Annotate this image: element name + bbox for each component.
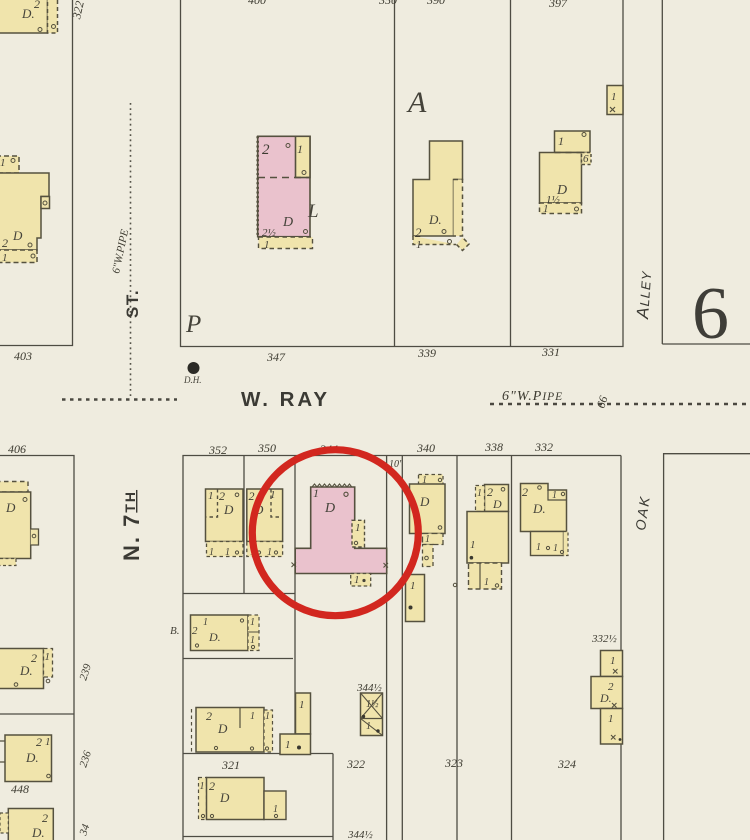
svg-text:D.: D. [21, 6, 35, 21]
svg-text:1: 1 [366, 721, 371, 732]
svg-text:1: 1 [610, 655, 616, 667]
svg-text:340: 340 [416, 441, 435, 455]
svg-text:1: 1 [313, 486, 319, 500]
svg-text:1: 1 [270, 489, 276, 501]
svg-text:406: 406 [8, 442, 26, 456]
svg-text:347: 347 [266, 350, 286, 364]
svg-text:2: 2 [522, 485, 528, 499]
svg-text:D: D [217, 721, 228, 736]
svg-text:1: 1 [425, 534, 430, 545]
svg-text:1: 1 [410, 580, 416, 592]
svg-text:448: 448 [11, 782, 29, 796]
svg-text:2: 2 [34, 0, 40, 11]
svg-text:P: P [185, 311, 201, 338]
svg-text:6"W.PIPE: 6"W.PIPE [502, 389, 563, 404]
svg-text:1: 1 [299, 699, 305, 711]
svg-text:D: D [492, 497, 502, 511]
svg-text:350: 350 [257, 441, 276, 455]
svg-text:397: 397 [548, 0, 568, 10]
svg-text:1: 1 [536, 542, 541, 553]
svg-text:D: D [5, 500, 16, 515]
svg-text:1: 1 [267, 547, 272, 558]
svg-text:D.: D. [599, 691, 612, 705]
svg-text:1: 1 [203, 617, 208, 628]
svg-text:1: 1 [2, 252, 8, 264]
svg-text:D.: D. [25, 750, 39, 765]
svg-text:350: 350 [378, 0, 397, 7]
svg-text:324: 324 [557, 757, 576, 771]
svg-text:2: 2 [42, 811, 48, 825]
svg-text:6: 6 [692, 273, 729, 355]
svg-text:D.: D. [428, 212, 442, 227]
svg-text:1: 1 [552, 490, 557, 501]
svg-text:D: D [419, 494, 430, 509]
svg-text:1: 1 [608, 713, 614, 725]
svg-text:D: D [324, 501, 335, 516]
svg-text:1: 1 [416, 239, 422, 251]
svg-text:L: L [307, 201, 319, 222]
svg-text:2½: 2½ [262, 227, 276, 239]
svg-text:2: 2 [219, 489, 225, 503]
svg-text:332: 332 [534, 440, 553, 454]
svg-text:A: A [406, 86, 427, 119]
svg-text:1: 1 [477, 488, 482, 499]
svg-text:1: 1 [250, 711, 255, 722]
svg-text:1: 1 [250, 635, 255, 646]
svg-text:1: 1 [209, 547, 214, 558]
svg-text:1: 1 [553, 543, 558, 554]
svg-text:2: 2 [36, 735, 42, 749]
svg-text:2: 2 [249, 489, 255, 503]
svg-text:1: 1 [264, 239, 270, 251]
svg-text:1: 1 [484, 577, 489, 588]
svg-text:1: 1 [45, 736, 51, 748]
svg-text:321: 321 [221, 758, 240, 772]
svg-text:1: 1 [470, 539, 476, 551]
svg-text:1: 1 [558, 134, 564, 148]
svg-text:1: 1 [422, 475, 427, 486]
svg-text:2: 2 [415, 225, 422, 240]
svg-text:2: 2 [192, 625, 198, 637]
svg-text:D.: D. [19, 663, 33, 678]
svg-text:1: 1 [45, 651, 51, 663]
svg-text:D.: D. [31, 825, 45, 840]
svg-text:322: 322 [346, 757, 365, 771]
svg-text:1: 1 [355, 522, 361, 534]
svg-text:344½: 344½ [356, 682, 382, 694]
svg-text:2: 2 [2, 236, 8, 250]
svg-text:D.: D. [208, 630, 221, 644]
svg-text:2: 2 [209, 779, 215, 793]
svg-text:323: 323 [444, 756, 463, 770]
svg-text:D: D [219, 790, 230, 805]
svg-text:331: 331 [541, 345, 560, 359]
svg-text:D.H.: D.H. [183, 375, 202, 385]
svg-text:W. RAY: W. RAY [241, 388, 330, 411]
svg-text:1: 1 [200, 781, 205, 792]
svg-text:338: 338 [484, 440, 503, 454]
svg-text:352: 352 [208, 443, 227, 457]
svg-text:332½: 332½ [591, 633, 617, 645]
svg-text:D: D [223, 502, 234, 517]
svg-text:D: D [12, 228, 23, 243]
svg-text:344½: 344½ [347, 829, 373, 840]
svg-text:6: 6 [583, 153, 589, 165]
svg-text:1: 1 [225, 547, 230, 558]
svg-text:1: 1 [265, 711, 270, 722]
svg-text:D: D [282, 215, 293, 230]
svg-text:D.: D. [532, 501, 546, 516]
svg-text:1: 1 [285, 739, 291, 751]
svg-text:1: 1 [354, 574, 360, 586]
svg-text:1: 1 [0, 157, 6, 169]
svg-text:400: 400 [248, 0, 266, 7]
svg-text:B.: B. [170, 625, 179, 637]
svg-text:2: 2 [206, 709, 212, 723]
svg-text:2: 2 [262, 142, 270, 158]
svg-text:1: 1 [297, 142, 303, 156]
svg-text:339: 339 [417, 346, 436, 360]
svg-text:1: 1 [273, 804, 278, 815]
svg-text:ST.: ST. [123, 289, 142, 318]
svg-text:1: 1 [208, 490, 214, 502]
svg-text:1½: 1½ [366, 699, 379, 710]
svg-text:1: 1 [250, 617, 255, 628]
svg-text:403: 403 [14, 349, 32, 363]
svg-text:1: 1 [611, 91, 617, 103]
svg-text:390: 390 [426, 0, 445, 7]
svg-text:1: 1 [543, 203, 549, 215]
